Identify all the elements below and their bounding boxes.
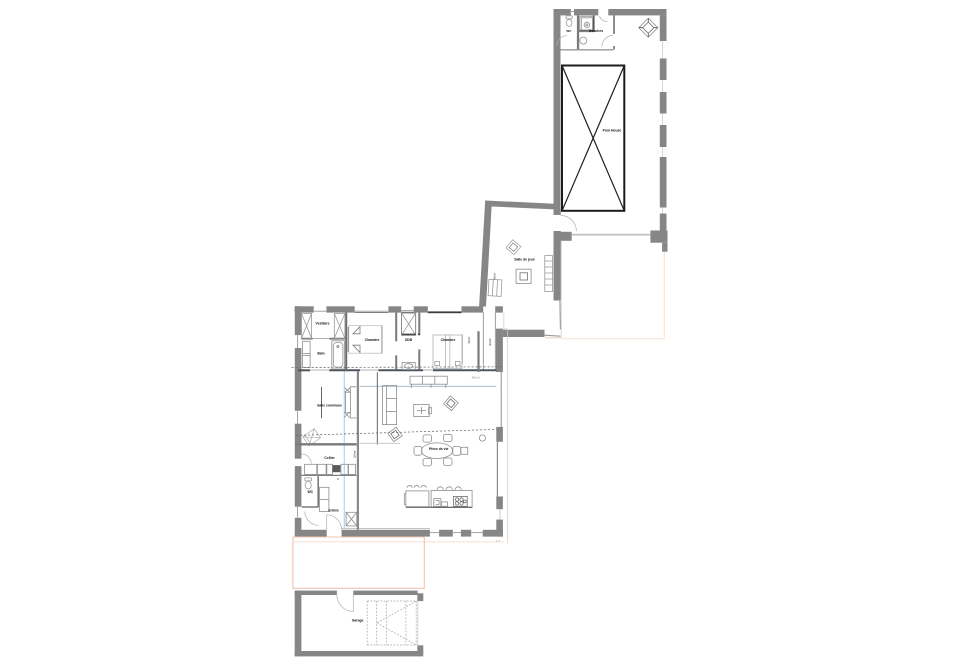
svg-text:l-l: l-l (337, 478, 339, 481)
svg-text:Douches: Douches (589, 29, 603, 33)
svg-text:Chambre: Chambre (441, 338, 456, 342)
svg-text:2,4 m²: 2,4 m² (352, 450, 356, 458)
svg-text:Cellier: Cellier (324, 456, 335, 460)
svg-text:Garage: Garage (352, 619, 364, 623)
svg-text:WC: WC (566, 29, 572, 33)
svg-text:Chambre: Chambre (365, 338, 380, 342)
svg-text:WC: WC (307, 490, 313, 494)
svg-text:Bain: Bain (317, 352, 324, 356)
svg-text:Pool House: Pool House (603, 129, 622, 133)
svg-text:Entrée: Entrée (328, 508, 339, 512)
svg-text:46,2 m²: 46,2 m² (472, 376, 480, 379)
svg-text:Pièce de vie: Pièce de vie (429, 447, 449, 451)
svg-text:4,6 m²: 4,6 m² (493, 272, 497, 279)
svg-text:Salle commune: Salle commune (317, 404, 342, 408)
svg-text:Salle de jeux: Salle de jeux (514, 258, 535, 262)
svg-text:2,9 m²: 2,9 m² (467, 336, 471, 343)
svg-text:SDB: SDB (405, 338, 413, 342)
svg-text:Vestiaire: Vestiaire (316, 321, 330, 325)
svg-text:3,4 m²: 3,4 m² (488, 338, 492, 346)
